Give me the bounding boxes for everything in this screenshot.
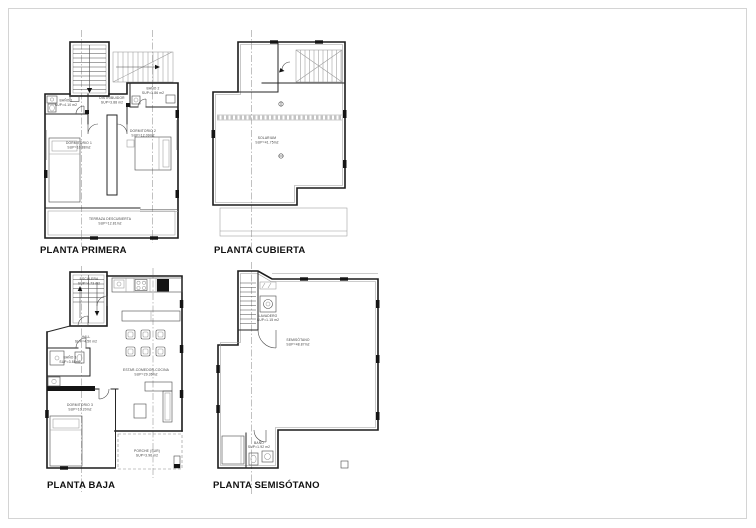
section-lines [82, 266, 154, 492]
kitchen [107, 276, 182, 431]
room-area: SUP=10.20m2 [68, 408, 91, 412]
upper-stair-flight [113, 52, 173, 82]
bathroom-2-fixtures [132, 95, 175, 104]
room-area: SUP=3.88 m2 [101, 101, 123, 105]
room-label: ESCALERA [80, 277, 99, 281]
plan-planta-semisotano: SEMISÓTANO SUP=48.87m2 LAVADERO SUP=1.15… [213, 262, 380, 494]
room-label: SEMISÓTANO [286, 337, 310, 342]
room-label: TERRAZA DESCUBIERTA [89, 217, 132, 221]
room-label: DORMITORIO 3 [67, 403, 93, 407]
room-label: BAÑO 1 [60, 98, 73, 103]
plan-planta-baja: ESCALERA SUP=4.73 m2 HALL SUP=4.50 m2 BA… [45, 266, 183, 492]
plan-planta-primera: BAÑO 1 SUP=4.10 m2 DISTRIBUIDOR SUP=3.88… [40, 30, 179, 256]
plan-title-cubierta: PLANTA CUBIERTA [214, 245, 305, 256]
room-label: BAÑO 3 [64, 355, 77, 360]
room-label: PORCHE (SUR) [134, 449, 160, 453]
room-label: HALL [82, 335, 91, 339]
stair-bulkhead [279, 50, 342, 82]
bed-3-icon [50, 416, 82, 466]
room-label: DORMITORIO 1 [66, 141, 92, 145]
staircase [70, 42, 109, 96]
plan-planta-cubierta: SOLARIUM SUP=41.75m2 PLANTA CUBIERTA [212, 30, 348, 256]
room-area: SUP=3.96 m2 [136, 454, 158, 458]
room-label: ESTAR-COMEDOR-COCINA [123, 368, 170, 372]
page-border [9, 9, 747, 519]
room-area: SUP=4.73 m2 [78, 282, 100, 286]
bed-2-icon [127, 137, 171, 170]
plan-title-semisotano: PLANTA SEMISÓTANO [213, 479, 320, 491]
room-area: SUP=10.88m2 [67, 146, 90, 150]
room-area: SUP=12.09m2 [131, 134, 154, 138]
room-area: SUP=41.75m2 [255, 141, 278, 145]
plan-title-baja: PLANTA BAJA [47, 480, 115, 491]
room-labels: SEMISÓTANO SUP=48.87m2 LAVADERO SUP=1.15… [248, 314, 310, 449]
room-area: SUP=4.50 m2 [75, 340, 97, 344]
exterior-walls [218, 271, 378, 468]
room-area: SUP=29.36m2 [134, 373, 157, 377]
room-area: SUP=1.92 m2 [248, 445, 270, 449]
room-labels: SOLARIUM SUP=41.75m2 [255, 136, 278, 145]
dining-table-icon [126, 330, 165, 356]
room-label: DISTRIBUIDOR [99, 96, 125, 100]
lower-floor-outline [220, 208, 347, 236]
room-label: DORMITORIO 2 [130, 129, 156, 133]
plan-title-primera: PLANTA PRIMERA [40, 245, 127, 256]
floor-plan-drawing: BAÑO 1 SUP=4.10 m2 DISTRIBUIDOR SUP=3.88… [0, 0, 756, 528]
pilasters [45, 300, 183, 470]
exterior-walls [213, 42, 345, 205]
staircase [238, 271, 258, 330]
room-label: BAÑO 2 [147, 86, 160, 91]
room-label: SOLARIUM [258, 136, 277, 140]
basement-bathroom [222, 430, 273, 468]
room-area: SUP=48.87m2 [286, 343, 309, 347]
roof-drain-band [217, 102, 342, 159]
room-area: SUP=3.88m2 [59, 360, 80, 364]
room-area: SUP=1.15 m2 [257, 318, 279, 322]
floor-plan-sheet: BAÑO 1 SUP=4.10 m2 DISTRIBUIDOR SUP=3.88… [0, 0, 756, 528]
room-area: SUP=12.81m2 [98, 222, 121, 226]
room-area: SUP=3.86 m2 [142, 91, 164, 95]
walls [47, 276, 182, 468]
room-area: SUP=4.10 m2 [55, 103, 77, 107]
